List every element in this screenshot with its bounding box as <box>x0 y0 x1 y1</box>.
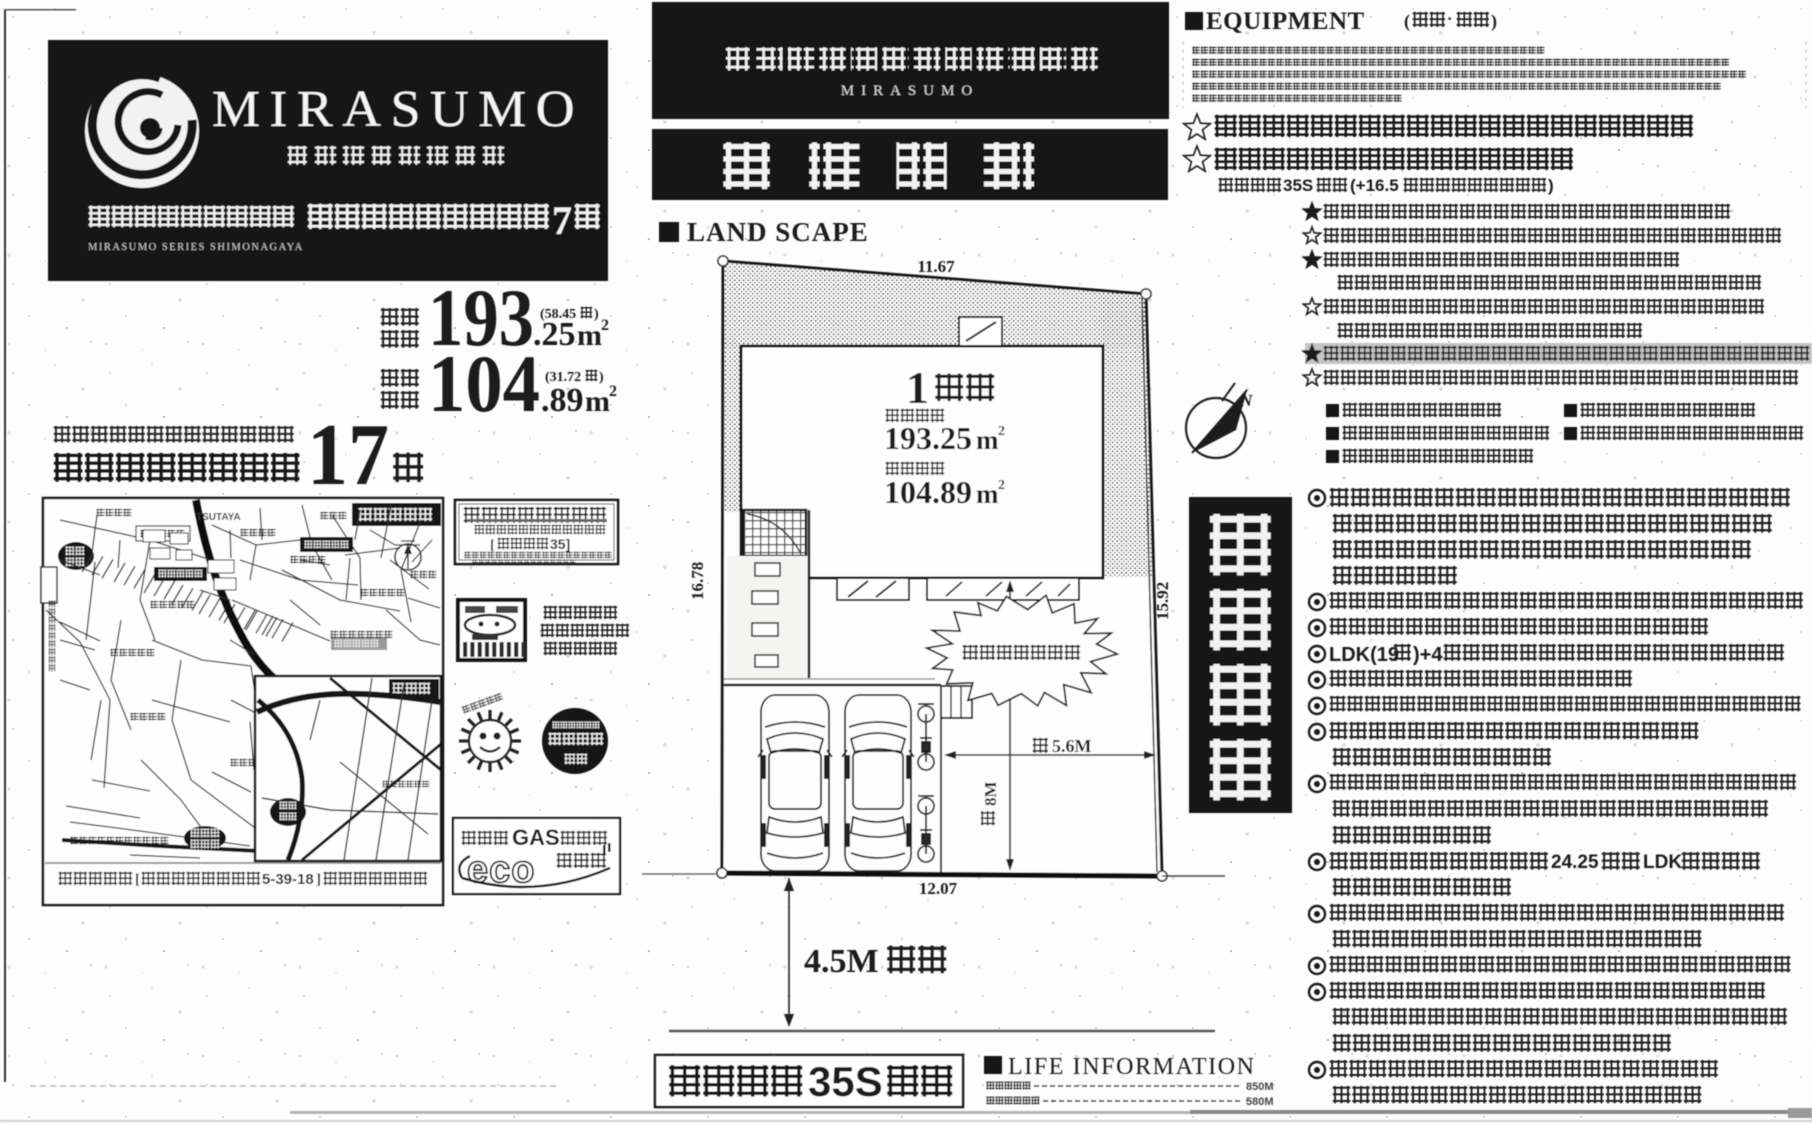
svg-text:16.78: 16.78 <box>688 562 707 600</box>
svg-text:[: [ <box>490 538 495 553</box>
svg-text:): ) <box>594 307 599 322</box>
svg-text:LIFE INFORMATION: LIFE INFORMATION <box>1008 1054 1256 1080</box>
svg-text:(31.72: (31.72 <box>545 370 581 385</box>
svg-text:m: m <box>976 425 999 455</box>
svg-text:580M: 580M <box>1246 1096 1274 1108</box>
svg-text:35S: 35S <box>1283 176 1313 195</box>
svg-text:N: N <box>1239 391 1253 410</box>
svg-text:EQUIPMENT: EQUIPMENT <box>1206 8 1365 35</box>
svg-text:[: [ <box>135 872 140 888</box>
svg-text:): ) <box>1491 11 1497 32</box>
svg-text:): ) <box>1548 176 1554 195</box>
svg-text:5-39-18: 5-39-18 <box>262 871 314 888</box>
svg-text:11.67: 11.67 <box>917 257 955 276</box>
svg-text:24.25: 24.25 <box>1551 852 1599 873</box>
svg-text:(+16.5: (+16.5 <box>1350 176 1399 195</box>
svg-text:12.07: 12.07 <box>919 879 958 898</box>
svg-text:LAND SCAPE: LAND SCAPE <box>687 217 869 247</box>
svg-text:(58.45: (58.45 <box>540 307 576 322</box>
svg-text:2: 2 <box>601 317 609 334</box>
svg-text:104.89: 104.89 <box>884 474 972 510</box>
svg-text:): ) <box>599 370 604 385</box>
svg-text:2: 2 <box>998 478 1005 493</box>
svg-text:MIRASUMO: MIRASUMO <box>212 81 584 138</box>
svg-text:(: ( <box>1404 11 1410 32</box>
svg-text:2: 2 <box>609 383 617 400</box>
svg-text:·: · <box>1447 11 1452 28</box>
svg-text:15.92: 15.92 <box>1153 582 1172 620</box>
svg-text:104: 104 <box>428 338 540 429</box>
svg-text:4.5M: 4.5M <box>804 943 879 980</box>
svg-text:35S: 35S <box>808 1058 883 1105</box>
svg-text:GAS: GAS <box>512 825 560 850</box>
svg-text:)+4: )+4 <box>1413 644 1443 666</box>
svg-text:LDK(19: LDK(19 <box>1329 644 1399 666</box>
svg-text:7: 7 <box>552 198 572 243</box>
svg-text:.89: .89 <box>541 382 584 419</box>
svg-text:m: m <box>577 319 602 352</box>
svg-text:MIRASUMO: MIRASUMO <box>841 83 980 99</box>
svg-text:m: m <box>976 479 999 509</box>
svg-text:MIRASUMO SERIES SHIMONAGAYA: MIRASUMO SERIES SHIMONAGAYA <box>88 242 304 253</box>
svg-text:35]: 35] <box>550 536 570 552</box>
svg-text:TSUTAYA: TSUTAYA <box>196 512 241 523</box>
svg-text:5.6M: 5.6M <box>1052 736 1092 756</box>
svg-text:17: 17 <box>307 407 389 504</box>
svg-text:m: m <box>585 385 610 418</box>
svg-text:2: 2 <box>998 424 1005 439</box>
svg-text:LDK: LDK <box>1643 852 1682 873</box>
svg-text:8M: 8M <box>981 781 1000 806</box>
svg-text:850M: 850M <box>1246 1081 1274 1093</box>
svg-text:eco: eco <box>467 849 535 891</box>
svg-text:1: 1 <box>906 362 929 413</box>
svg-text:193.25: 193.25 <box>884 420 972 456</box>
svg-text:]: ] <box>316 872 321 888</box>
